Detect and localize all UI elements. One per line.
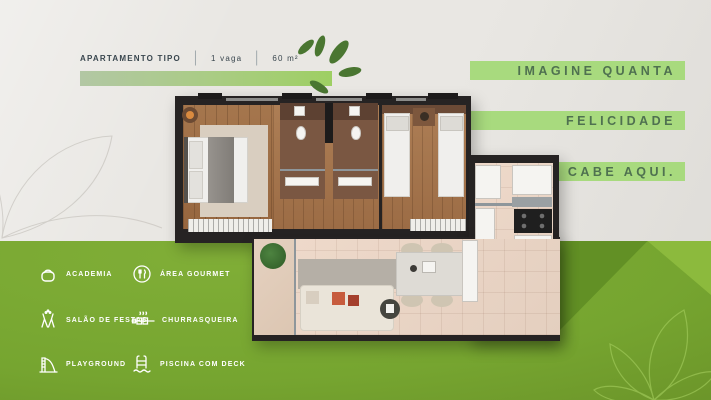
wall-nub bbox=[198, 93, 222, 99]
pillow bbox=[189, 171, 203, 199]
master-wardrobe bbox=[188, 219, 272, 232]
amenity-playground: PLAYGROUND bbox=[36, 352, 126, 376]
marketing-page: APARTAMENTO TIPO | 1 vaga | 60 m² IMAGIN… bbox=[0, 0, 711, 400]
area-label: 60 m² bbox=[272, 54, 298, 63]
shaft-wall bbox=[325, 103, 333, 143]
plant bbox=[260, 243, 286, 269]
slogan-line-1: IMAGINE QUANTA bbox=[518, 64, 677, 78]
cutlery-icon bbox=[130, 262, 154, 286]
shower-bench bbox=[338, 177, 372, 186]
champagne-glasses-icon bbox=[36, 308, 60, 332]
wall-nub bbox=[282, 93, 312, 99]
green-diagonal-bands bbox=[560, 241, 711, 400]
wall-nub bbox=[366, 93, 392, 99]
pool-ladder-icon bbox=[130, 352, 154, 376]
amenity-label: PISCINA COM DECK bbox=[160, 361, 246, 368]
master-bed-headboard bbox=[184, 137, 188, 203]
amenity-label: CHURRASQUEIRA bbox=[162, 317, 239, 324]
pillow bbox=[189, 141, 203, 169]
gray-throw-blanket bbox=[208, 137, 234, 203]
kitchen-island bbox=[462, 240, 478, 302]
second-wardrobe bbox=[410, 219, 466, 231]
amenity-label: ACADEMIA bbox=[66, 271, 113, 278]
amenity-label: ÁREA GOURMET bbox=[160, 271, 231, 278]
barbecue-skewer-icon bbox=[130, 308, 156, 332]
slogan-line-3: CABE AQUI. bbox=[568, 165, 676, 179]
sink bbox=[349, 106, 360, 116]
sofa-pillow bbox=[306, 291, 319, 304]
pillow bbox=[440, 116, 463, 131]
sofa-pillow-orange bbox=[332, 292, 345, 305]
kettlebell-icon bbox=[36, 262, 60, 286]
nightstand-decor bbox=[420, 112, 429, 121]
amenity-label: PLAYGROUND bbox=[66, 361, 126, 368]
sink bbox=[294, 106, 305, 116]
wall-nub bbox=[428, 93, 458, 99]
shower-bench bbox=[285, 177, 319, 186]
flower-decor bbox=[186, 111, 194, 119]
service-glass-divider bbox=[475, 203, 515, 206]
table-decor bbox=[422, 261, 436, 273]
toilet bbox=[296, 126, 306, 140]
table-decor-dark bbox=[410, 265, 417, 272]
slide-icon bbox=[36, 352, 60, 376]
amenity-churrasqueira: CHURRASQUEIRA bbox=[130, 308, 239, 332]
balcony-glass-door bbox=[294, 239, 296, 335]
unit-type-label: APARTAMENTO TIPO bbox=[80, 54, 181, 63]
toilet bbox=[351, 126, 361, 140]
stove-cooktop bbox=[514, 209, 552, 233]
divider: | bbox=[255, 50, 259, 67]
amenity-piscina-com-deck: PISCINA COM DECK bbox=[130, 352, 246, 376]
counter-shelf bbox=[512, 197, 552, 207]
slogan-band-1: IMAGINE QUANTA bbox=[470, 61, 685, 80]
pillow bbox=[386, 116, 409, 131]
leaf-logo bbox=[292, 34, 376, 98]
window bbox=[396, 98, 426, 101]
laundry-counter bbox=[475, 165, 501, 199]
window bbox=[316, 98, 362, 101]
amenity-area-gourmet: ÁREA GOURMET bbox=[130, 262, 231, 286]
amenity-academia: ACADEMIA bbox=[36, 262, 113, 286]
slogan-line-2: FELICIDADE bbox=[566, 114, 676, 128]
divider: | bbox=[194, 50, 198, 67]
shower-glass bbox=[280, 169, 325, 171]
fridge bbox=[512, 165, 552, 195]
unit-info-header: APARTAMENTO TIPO | 1 vaga | 60 m² bbox=[80, 50, 299, 66]
parking-label: 1 vaga bbox=[211, 54, 242, 63]
shower-glass bbox=[333, 169, 378, 171]
sofa-pillow-red bbox=[348, 295, 359, 306]
tray-decor bbox=[386, 304, 394, 313]
window bbox=[226, 98, 278, 101]
